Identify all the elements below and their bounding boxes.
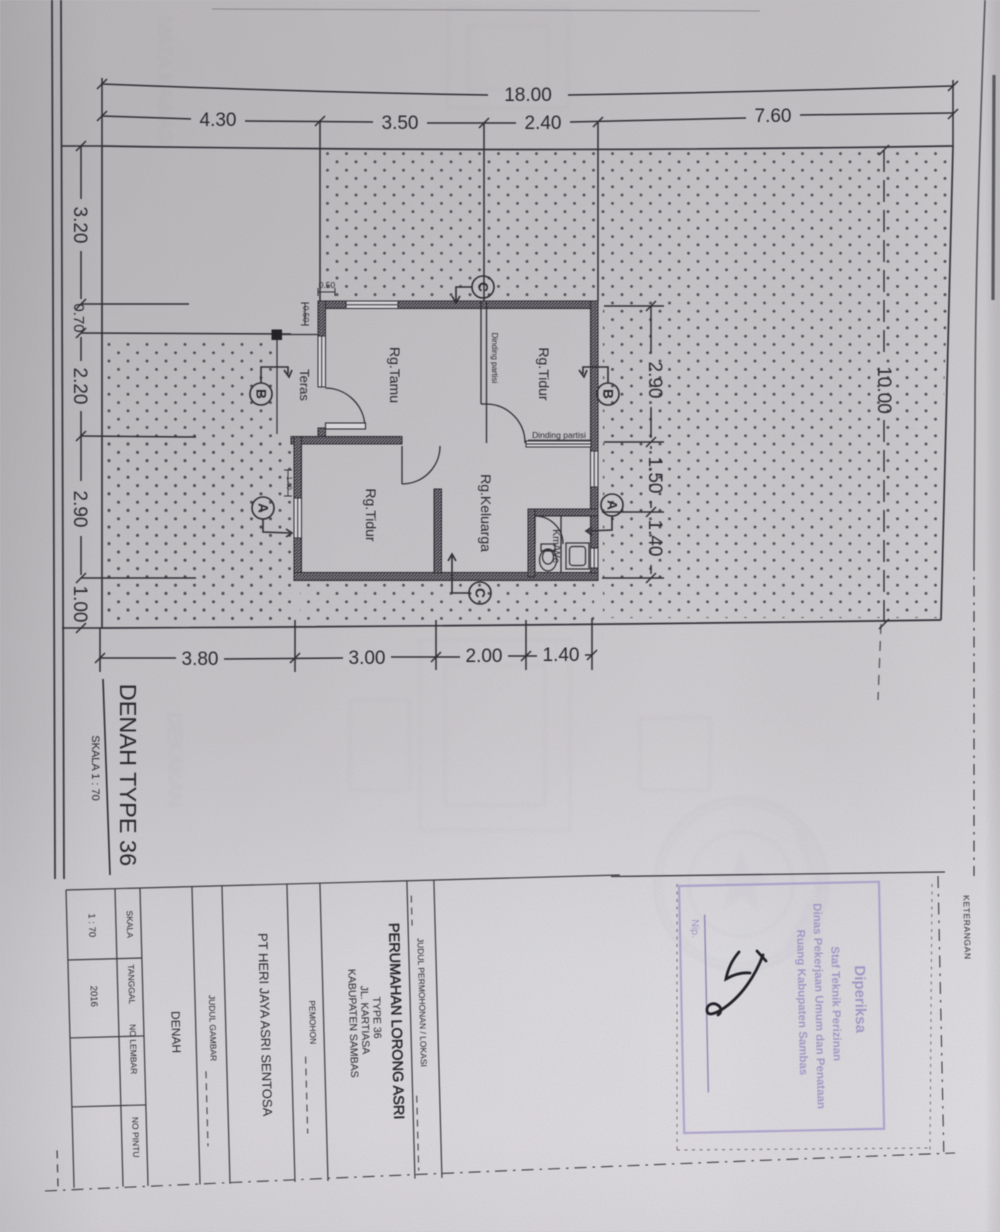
svg-text:TYPE 36: TYPE 36 bbox=[370, 996, 383, 1038]
svg-text:Rg.Tamu: Rg.Tamu bbox=[387, 347, 403, 403]
svg-text:2.00: 2.00 bbox=[466, 646, 503, 667]
svg-text:1.00: 1.00 bbox=[69, 586, 90, 623]
svg-text:Km/Wc: Km/Wc bbox=[550, 529, 562, 563]
svg-text:1.50: 1.50 bbox=[644, 457, 665, 494]
svg-text:Dinding partisi: Dinding partisi bbox=[490, 333, 499, 384]
svg-text:SKALA: SKALA bbox=[125, 910, 136, 938]
svg-text:Dinding partisi: Dinding partisi bbox=[532, 430, 586, 440]
svg-text:3.50: 3.50 bbox=[382, 113, 419, 134]
svg-text:MATA KAWAS: MATA KAWAS bbox=[153, 16, 175, 144]
svg-text:TANGGAL: TANGGAL bbox=[126, 964, 137, 1005]
svg-text:10.00: 10.00 bbox=[873, 366, 894, 414]
svg-text:Rg.Keluarga: Rg.Keluarga bbox=[478, 474, 494, 552]
svg-text:0.50: 0.50 bbox=[301, 306, 311, 323]
svg-text:Staf Teknik Perizinan: Staf Teknik Perizinan bbox=[828, 946, 842, 1061]
svg-text:Nip.: Nip. bbox=[689, 919, 701, 938]
svg-text:SKALA 1 : 70: SKALA 1 : 70 bbox=[89, 735, 101, 800]
svg-text:1.40: 1.40 bbox=[543, 645, 580, 666]
svg-text:1.40: 1.40 bbox=[285, 476, 292, 490]
svg-text:18.00: 18.00 bbox=[504, 85, 552, 106]
svg-text:2.20: 2.20 bbox=[69, 368, 90, 405]
svg-text:NO PINTU: NO PINTU bbox=[130, 1117, 141, 1158]
svg-text:A: A bbox=[256, 503, 271, 513]
svg-text:1.40: 1.40 bbox=[644, 520, 665, 557]
svg-text:JUDUL GAMBAR: JUDUL GAMBAR bbox=[207, 995, 219, 1062]
svg-text:3.00: 3.00 bbox=[349, 648, 386, 669]
svg-text:4.30: 4.30 bbox=[200, 110, 237, 131]
svg-text:B: B bbox=[601, 389, 616, 399]
svg-text:2.90: 2.90 bbox=[69, 491, 90, 528]
svg-text:KETERANGAN: KETERANGAN bbox=[961, 895, 972, 960]
svg-text:Rg.Tidur: Rg.Tidur bbox=[363, 488, 379, 542]
svg-text:7.60: 7.60 bbox=[755, 106, 792, 127]
svg-text:0.50: 0.50 bbox=[319, 280, 336, 290]
svg-text:3.20: 3.20 bbox=[69, 207, 90, 244]
svg-text:DENAH TYPE 36: DENAH TYPE 36 bbox=[115, 684, 141, 866]
svg-text:NO LEMBAR: NO LEMBAR bbox=[128, 1024, 139, 1074]
svg-text:PEMOHON: PEMOHON bbox=[307, 1000, 318, 1044]
svg-text:Diperiksa: Diperiksa bbox=[851, 965, 869, 1034]
svg-text:3.80: 3.80 bbox=[182, 649, 219, 670]
svg-text:Rg.Tidur: Rg.Tidur bbox=[536, 347, 552, 401]
svg-text:A: A bbox=[605, 500, 620, 510]
svg-text:1 : 70: 1 : 70 bbox=[86, 913, 98, 937]
svg-text:2.40: 2.40 bbox=[525, 113, 562, 134]
svg-text:2.90: 2.90 bbox=[644, 362, 665, 399]
svg-text:B: B bbox=[254, 389, 269, 399]
svg-text:Teras: Teras bbox=[297, 369, 312, 401]
svg-text:C: C bbox=[473, 588, 488, 598]
svg-text:DEKAKAN: DEKAKAN bbox=[163, 712, 185, 808]
svg-text:0.70: 0.70 bbox=[70, 303, 87, 332]
svg-text:DENAH: DENAH bbox=[168, 1011, 183, 1053]
svg-text:C: C bbox=[476, 282, 491, 292]
svg-text:2016: 2016 bbox=[88, 986, 100, 1007]
